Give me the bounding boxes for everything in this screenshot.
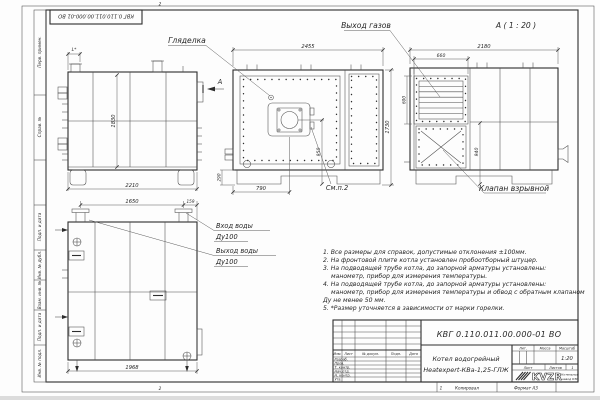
note-line: Ду не менее 50 мм. — [322, 297, 386, 304]
company-name-2: завод КЗР — [562, 377, 578, 381]
margin-cell-label: Инв. № подл. — [37, 349, 42, 378]
tb-product-name-1: Котел водогрейный — [432, 355, 499, 363]
dim-base-height: 290 — [217, 173, 222, 181]
dim-back-width: 1968 — [125, 365, 139, 371]
engineering-drawing: Перв. примен. Справ. № Подп. и дата Инв.… — [0, 0, 600, 400]
fold-mark-bottom-2: 1 — [440, 386, 443, 391]
tb-scale-header: Масштаб — [559, 347, 575, 351]
tb-mass-header: Масса — [540, 347, 551, 351]
tb-col-list: Лист — [343, 352, 354, 356]
note-line: 4. На подводящей трубе котла, до запорно… — [323, 280, 546, 288]
copied-label: Копировал — [455, 386, 479, 391]
margin-cell-label: Подп. и дата — [37, 212, 42, 241]
corner-designation: КВГ 0.110.011.00.000-01 ВО — [58, 13, 134, 19]
margin-cell-label: Взам. инв. № — [37, 280, 42, 309]
margin-cell-label: Инв. № дубл. — [37, 251, 42, 280]
section-arrow-label: А — [217, 78, 223, 86]
view-back: 1650 159 1968 Вход воды Ду100 Выход воды… — [55, 199, 276, 374]
technical-notes: 1. Все размеры для справок, допустимые о… — [322, 249, 585, 312]
dim-height: 1830 — [111, 114, 117, 128]
dim-front-height: 1730 — [385, 120, 391, 134]
note-line: 2. На фронтовой плите котла установлен п… — [323, 256, 538, 264]
fold-mark-bottom: 2 — [159, 386, 162, 391]
note-line: манометр, прибор для измерения температу… — [331, 272, 487, 280]
dim-gas-width: 660 — [437, 53, 446, 59]
water-outlet-dn: Ду100 — [215, 258, 238, 266]
note-line: 5. *Размер уточняется в зависимости от м… — [323, 305, 505, 312]
dim-l: L* — [72, 47, 78, 53]
format-label: Формат А3 — [514, 386, 538, 391]
note-line: манометр, прибор для измерения температу… — [331, 288, 585, 296]
tb-scale-value: 1:20 — [561, 356, 573, 362]
tb-col-izm: Изм. — [334, 352, 342, 356]
tb-col-sign: Подп. — [391, 352, 401, 356]
view-a-title: А ( 1 : 20 ) — [495, 21, 536, 30]
tb-col-date: Дата — [408, 352, 418, 356]
dim-front-width: 2455 — [301, 44, 315, 50]
view-front: 2455 1730 950 290 790 См.п.2 Гляделка — [168, 36, 394, 195]
view-rear: А ( 1 : 20 ) 2180 660 — [341, 21, 568, 193]
dim-rear-width: 2180 — [477, 44, 491, 50]
sight-glass-label: Гляделка — [168, 36, 206, 45]
note-line: 1. Все размеры для справок, допустимые о… — [323, 249, 527, 256]
explosion-valve-label: Клапан взрывной — [479, 184, 549, 193]
logo-text: KVZR — [532, 372, 563, 383]
tb-col-doc: № докум. — [361, 352, 379, 356]
tb-product-name-2: Heatexpert-КВа-1,25-ГЛЖ — [423, 366, 509, 374]
tb-sheets-header: Листов — [548, 366, 562, 370]
see-note-label: См.п.2 — [326, 184, 348, 192]
dim-burner-offset: 790 — [256, 186, 267, 192]
drawing-sheet: Перв. примен. Справ. № Подп. и дата Инв.… — [0, 0, 600, 400]
water-outlet-label: Выход воды — [216, 247, 258, 255]
dim-valve-height: 940 — [474, 148, 480, 157]
title-block: Изм. Лист № докум. Подп. Дата Разраб. Пр… — [333, 320, 579, 392]
tb-row-approved: Утв. — [335, 378, 342, 382]
dim-gas-height: 600 — [402, 96, 407, 104]
view-side: L* 1830 2210 А — [58, 47, 224, 191]
tb-lit-header: Лит. — [518, 347, 527, 351]
company-logo: KVZR Котельный завод КЗР — [516, 372, 579, 383]
gas-outlet-label: Выход газов — [341, 21, 391, 30]
margin-cell-label: Перв. примен. — [37, 36, 42, 67]
tb-sheets-value: 1 — [571, 366, 573, 370]
fold-mark-top: 2 — [159, 2, 162, 7]
tb-sheet-header: Лист — [523, 366, 534, 370]
margin-cell-label: Подп. и дата — [37, 312, 42, 341]
sheet-frame: Перв. примен. Справ. № Подп. и дата Инв.… — [0, 2, 600, 400]
margin-cell-label: Справ. № — [37, 116, 42, 137]
note-line: 3. На подводящей трубе котла, до запорно… — [323, 264, 546, 272]
water-inlet-dn: Ду100 — [215, 233, 238, 241]
dim-nozzle-edge: 159 — [187, 199, 195, 204]
water-inlet-label: Вход воды — [216, 222, 253, 230]
dim-width: 2210 — [125, 183, 139, 189]
tb-designation: КВГ 0.110.011.00.000-01 ВО — [437, 330, 562, 339]
dim-nozzle-span: 1650 — [125, 199, 139, 205]
